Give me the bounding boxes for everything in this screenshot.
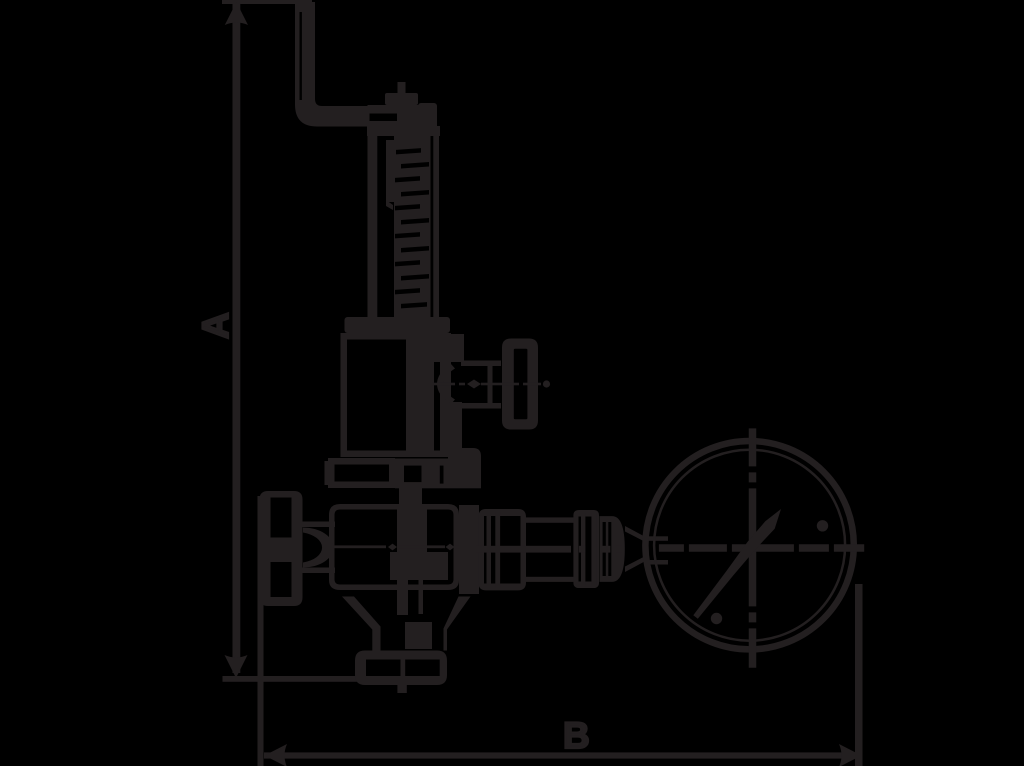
svg-text:A: A <box>195 312 236 339</box>
svg-text:B: B <box>563 715 590 756</box>
